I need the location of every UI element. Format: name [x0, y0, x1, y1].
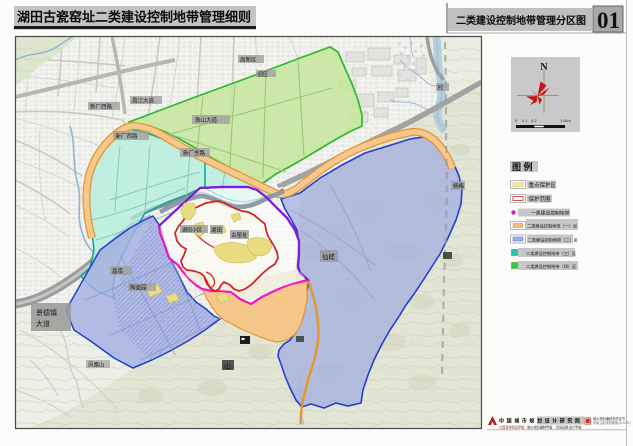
svg-text:城乡规划编制甲级: 城乡规划编制甲级: [527, 425, 553, 430]
svg-text:珠山大道: 珠山大道: [195, 116, 218, 124]
svg-text:二类建设控制地带（三）区: 二类建设控制地带（三）区: [526, 250, 576, 257]
svg-text:昌南: 昌南: [112, 267, 124, 275]
svg-text:0.2: 0.2: [531, 118, 537, 123]
svg-text:新厂西路: 新厂西路: [90, 103, 113, 111]
svg-text:村: 村: [438, 84, 444, 92]
svg-text:湖田古瓷窑址二类建设控制地带管理细则: 湖田古瓷窑址二类建设控制地带管理细则: [17, 10, 251, 25]
svg-text:1.5km: 1.5km: [560, 118, 572, 123]
svg-text:山: 山: [224, 362, 231, 371]
svg-text:古窑址: 古窑址: [231, 231, 248, 239]
svg-text:凤凰山: 凤凰山: [88, 361, 105, 369]
svg-text:甲级 [建]城规编第(021001): 甲级 [建]城规编第(021001): [593, 420, 631, 425]
svg-text:二类建设控制地带（二）区: 二类建设控制地带（二）区: [528, 237, 578, 244]
svg-text:湖田小区: 湖田小区: [182, 227, 202, 234]
svg-text:新厂东路: 新厂东路: [183, 149, 206, 157]
svg-text:二类建设控制地带（四）区: 二类建设控制地带（四）区: [526, 263, 576, 270]
svg-text:中国城市规划设计研究院: 中国城市规划设计研究院: [499, 418, 583, 425]
svg-text:图 例: 图 例: [512, 161, 533, 172]
svg-text:湖田: 湖田: [211, 226, 222, 234]
svg-text:昌江大道: 昌江大道: [132, 97, 155, 105]
svg-text:高新区: 高新区: [240, 56, 257, 64]
svg-text:工程咨询资证甲级: 工程咨询资证甲级: [499, 425, 525, 430]
svg-text:仙槎: 仙槎: [322, 252, 336, 261]
svg-text:风景园林设计甲级: 风景园林设计甲级: [556, 425, 582, 430]
svg-text:杨梅: 杨梅: [453, 182, 465, 190]
svg-text:二类建设控制地带管理分区图: 二类建设控制地带管理分区图: [456, 14, 586, 27]
svg-text:新厂西路: 新厂西路: [116, 132, 139, 140]
svg-text:重点保护区: 重点保护区: [529, 181, 557, 189]
svg-text:大道: 大道: [36, 319, 50, 328]
svg-text:保护范围: 保护范围: [529, 195, 552, 203]
svg-text:陶瓷园: 陶瓷园: [130, 284, 147, 292]
svg-text:二类建设控制地带（一）区: 二类建设控制地带（一）区: [527, 223, 577, 230]
svg-text:园区: 园区: [258, 72, 268, 78]
svg-text:景德镇: 景德镇: [36, 308, 57, 317]
svg-text:一类建设控制地带: 一类建设控制地带: [531, 210, 570, 217]
svg-text:0.1: 0.1: [522, 118, 528, 123]
svg-text:N: N: [540, 62, 548, 73]
svg-text:01: 01: [597, 8, 620, 33]
